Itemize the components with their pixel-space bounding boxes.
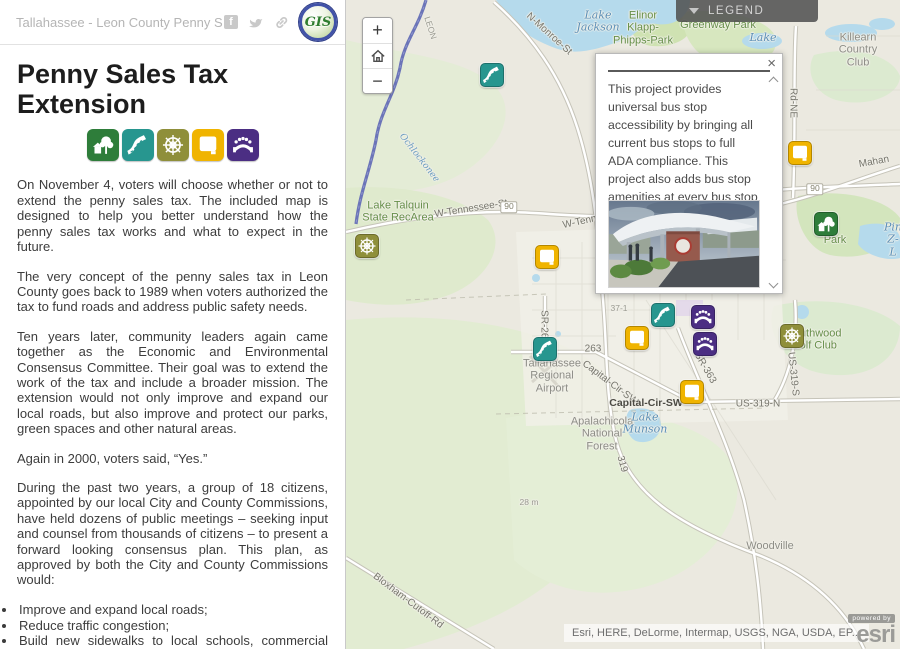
marker-roads[interactable] bbox=[480, 63, 504, 87]
bullet-item: Improve and expand local roads; bbox=[17, 602, 328, 618]
paragraph: On November 4, voters will choose whethe… bbox=[17, 177, 328, 254]
side-panel: Tallahassee - Leon County Penny Sales...… bbox=[0, 0, 346, 649]
social-buttons: f bbox=[223, 14, 289, 30]
zoom-in-button[interactable]: + bbox=[363, 18, 392, 43]
marker-transit[interactable] bbox=[691, 305, 715, 329]
map-canvas[interactable]: Lake JacksonElinor Klapp- Phipps-ParkGre… bbox=[346, 0, 900, 649]
marker-core[interactable] bbox=[780, 324, 804, 348]
bullet-item: Reduce traffic congestion; bbox=[17, 618, 328, 634]
marker-roads[interactable] bbox=[651, 303, 675, 327]
sidewalks-icon bbox=[192, 129, 224, 161]
panel-paragraphs: On November 4, voters will choose whethe… bbox=[17, 177, 328, 587]
facebook-icon[interactable]: f bbox=[223, 14, 239, 30]
marker-transit[interactable] bbox=[693, 332, 717, 356]
panel-body: Penny Sales Tax Extension On November 4,… bbox=[0, 45, 345, 649]
paragraph: During the past two years, a group of 18… bbox=[17, 480, 328, 588]
popup-project-image bbox=[608, 200, 760, 288]
chevron-down-icon bbox=[689, 8, 699, 14]
transit-icon bbox=[227, 129, 259, 161]
panel-header: Tallahassee - Leon County Penny Sales...… bbox=[0, 0, 345, 45]
marker-sidewalks[interactable] bbox=[680, 380, 704, 404]
roads-icon bbox=[122, 129, 154, 161]
paragraph: Ten years later, community leaders again… bbox=[17, 329, 328, 437]
popup-scrollbar[interactable] bbox=[766, 78, 780, 287]
paragraph: Again in 2000, voters said, “Yes.” bbox=[17, 451, 328, 466]
esri-wordmark: esri bbox=[856, 621, 895, 648]
esri-logo: powered by esri bbox=[848, 607, 895, 647]
home-button[interactable] bbox=[363, 43, 392, 68]
zoom-out-button[interactable]: − bbox=[363, 68, 392, 93]
legend-label: LEGEND bbox=[708, 5, 764, 17]
zoom-controls: + − bbox=[362, 17, 393, 94]
marker-sidewalks[interactable] bbox=[625, 326, 649, 350]
bullet-item: Build new sidewalks to local schools, co… bbox=[17, 633, 328, 649]
marker-parks[interactable] bbox=[814, 212, 838, 236]
twitter-icon[interactable] bbox=[248, 14, 264, 30]
scroll-up-icon[interactable] bbox=[768, 77, 778, 87]
page-title: Penny Sales Tax Extension bbox=[17, 59, 328, 119]
popup-close-icon[interactable]: × bbox=[767, 56, 776, 71]
marker-sidewalks[interactable] bbox=[788, 141, 812, 165]
scroll-down-icon[interactable] bbox=[768, 279, 778, 289]
panel-bullet-list: Improve and expand local roads;Reduce tr… bbox=[17, 602, 328, 649]
gis-logo[interactable]: GIS bbox=[299, 3, 337, 41]
home-icon bbox=[369, 47, 387, 65]
app-title: Tallahassee - Leon County Penny Sales... bbox=[16, 15, 223, 30]
marker-core[interactable] bbox=[355, 234, 379, 258]
parks-icon bbox=[87, 129, 119, 161]
paragraph: The very concept of the penny sales tax … bbox=[17, 269, 328, 315]
feature-popup: × This project provides universal bus st… bbox=[595, 53, 783, 294]
popup-divider bbox=[608, 70, 770, 72]
map-attribution: Esri, HERE, DeLorme, Intermap, USGS, NGA… bbox=[564, 624, 869, 642]
marker-sidewalks[interactable] bbox=[535, 245, 559, 269]
share-link-icon[interactable] bbox=[273, 14, 289, 30]
marker-roads[interactable] bbox=[533, 337, 557, 361]
legend-button[interactable]: LEGEND bbox=[676, 0, 818, 22]
storymap-app: Tallahassee - Leon County Penny Sales...… bbox=[0, 0, 900, 649]
category-icons bbox=[17, 129, 328, 161]
core-icon bbox=[157, 129, 189, 161]
